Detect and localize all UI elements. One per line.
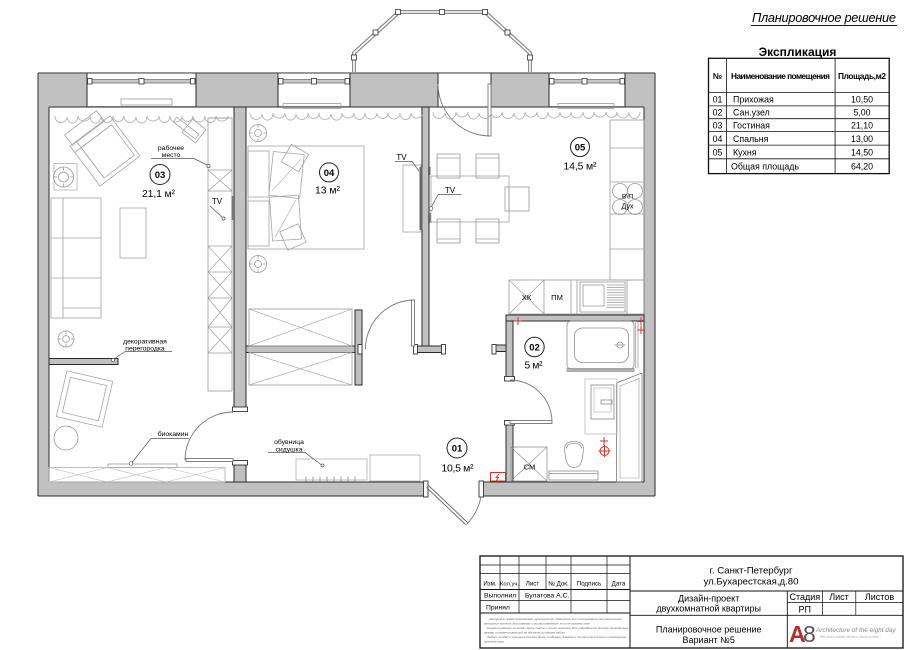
svg-text:ХК: ХК <box>522 293 532 302</box>
svg-text:Дизайн-проект: Дизайн-проект <box>678 594 739 604</box>
svg-text:TV: TV <box>212 197 223 206</box>
svg-text:СМ: СМ <box>524 463 536 472</box>
svg-text:Кухня: Кухня <box>733 147 757 157</box>
svg-text:01: 01 <box>713 95 723 105</box>
svg-text:Любые ошибки и упущения должны: Любые ошибки и упущения должны быть сооб… <box>486 635 626 639</box>
svg-text:TV: TV <box>445 186 456 195</box>
svg-text:64,20: 64,20 <box>851 161 873 171</box>
svg-text:05: 05 <box>713 147 723 157</box>
svg-text:13 м²: 13 м² <box>315 186 341 197</box>
svg-text:РП: РП <box>799 605 811 615</box>
svg-text:"Be work while others have a r: "Be work while others have a rest." <box>819 634 881 639</box>
svg-text:размер соответствующий на объе: размер соответствующий на объекте до нач… <box>483 631 565 635</box>
svg-text:Изм.: Изм. <box>483 581 497 588</box>
svg-text:03: 03 <box>155 170 166 181</box>
svg-text:04: 04 <box>713 134 723 144</box>
svg-text:декоративная: декоративная <box>123 339 167 346</box>
svg-text:Экспликация: Экспликация <box>759 45 837 59</box>
svg-text:Принял: Принял <box>486 605 510 612</box>
svg-text:02: 02 <box>713 108 723 118</box>
svg-text:Architecture of the eight: Architecture of the eight day <box>815 627 896 634</box>
svg-text:Гостиная: Гостиная <box>733 120 770 130</box>
svg-text:03: 03 <box>713 120 723 130</box>
svg-text:место: место <box>162 152 181 159</box>
svg-text:Дух: Дух <box>622 204 634 211</box>
svg-text:Кол.уч.: Кол.уч. <box>500 582 519 588</box>
svg-text:10,5 м²: 10,5 м² <box>442 464 475 475</box>
svg-text:Выполнил: Выполнил <box>484 593 516 600</box>
svg-text:Спальня: Спальня <box>733 134 769 144</box>
svg-text:04: 04 <box>324 168 335 179</box>
svg-text:В\П: В\П <box>622 194 633 201</box>
svg-text:Вариант №5: Вариант №5 <box>683 635 735 645</box>
svg-text:№ Док.: № Док. <box>548 581 569 588</box>
svg-text:Стадия: Стадия <box>789 592 820 602</box>
svg-text:ПМ: ПМ <box>551 293 563 302</box>
svg-text:Сан.узел: Сан.узел <box>733 108 770 118</box>
svg-text:Лист: Лист <box>829 592 849 602</box>
svg-text:Дата: Дата <box>612 581 626 588</box>
svg-text:рабочее: рабочее <box>158 144 184 152</box>
svg-text:Никакие размеры не могут быть: Никакие размеры не могут быть сняты с эт… <box>487 626 629 630</box>
svg-text:8: 8 <box>803 621 816 647</box>
svg-text:Планировочное решение: Планировочное решение <box>656 625 762 635</box>
svg-text:Площадь,м2: Площадь,м2 <box>838 71 886 81</box>
svg-text:Архитектора: Архитектора <box>483 640 504 644</box>
svg-text:биокамин: биокамин <box>158 430 189 438</box>
svg-text:13,00: 13,00 <box>851 134 873 144</box>
svg-text:02: 02 <box>529 343 540 354</box>
svg-text:двухкомнатной квартиры: двухкомнатной квартиры <box>656 604 761 614</box>
svg-text:Прихожая: Прихожая <box>733 95 774 105</box>
svg-text:05: 05 <box>575 143 586 154</box>
svg-text:01: 01 <box>452 444 463 455</box>
svg-text:Планировочное решение: Планировочное решение <box>752 10 896 25</box>
svg-text:Листов: Листов <box>865 592 894 602</box>
svg-text:Лист: Лист <box>526 581 540 588</box>
svg-text:Общая площадь: Общая площадь <box>731 161 799 171</box>
svg-text:г. Санкт-Петербург: г. Санкт-Петербург <box>710 566 793 577</box>
svg-text:№: № <box>713 71 723 81</box>
svg-text:обувница: обувница <box>274 438 304 446</box>
svg-text:TV: TV <box>396 153 407 162</box>
svg-text:14,5 м²: 14,5 м² <box>564 162 598 173</box>
svg-text:21,1 м²: 21,1 м² <box>142 189 176 200</box>
svg-text:14,50: 14,50 <box>851 147 873 157</box>
svg-text:Подпись: Подпись <box>577 581 602 588</box>
svg-text:Булатова А.С.: Булатова А.С. <box>525 593 570 600</box>
svg-text:10,50: 10,50 <box>851 95 873 105</box>
svg-text:Авторские права принадлежат ар: Авторские права принадлежат архитектору.… <box>488 617 622 621</box>
svg-text:Наименование помещения: Наименование помещения <box>731 71 830 81</box>
svg-text:авторских advokov. Все размеры: авторских advokov. Все размеры и воспрои… <box>484 622 590 626</box>
svg-text:5 м²: 5 м² <box>525 361 544 372</box>
svg-text:ул.Бухарестская,д.80: ул.Бухарестская,д.80 <box>704 577 799 588</box>
svg-text:21,10: 21,10 <box>851 120 873 130</box>
svg-text:5,00: 5,00 <box>853 108 870 118</box>
